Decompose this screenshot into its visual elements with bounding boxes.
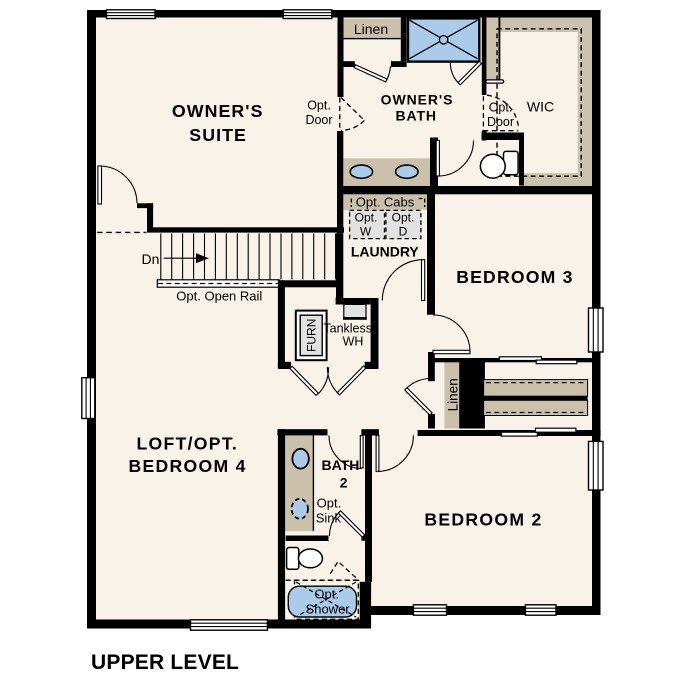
svg-text:Opt.: Opt. <box>314 587 339 602</box>
svg-text:Linen: Linen <box>445 378 460 411</box>
svg-text:2: 2 <box>340 475 348 491</box>
svg-text:FURN: FURN <box>305 319 319 352</box>
svg-text:Linen: Linen <box>354 21 388 37</box>
svg-text:D: D <box>399 225 408 239</box>
svg-text:LOFT/OPT.: LOFT/OPT. <box>136 433 238 453</box>
svg-text:BEDROOM 4: BEDROOM 4 <box>128 456 246 476</box>
svg-text:Opt.: Opt. <box>489 101 513 115</box>
svg-text:Opt.: Opt. <box>317 496 342 511</box>
svg-text:Shower: Shower <box>306 601 351 616</box>
svg-text:OWNER'S: OWNER'S <box>172 101 264 121</box>
svg-text:BATH: BATH <box>321 457 359 473</box>
svg-text:Opt.: Opt. <box>392 211 415 225</box>
svg-text:WH: WH <box>343 335 364 349</box>
svg-text:BEDROOM 3: BEDROOM 3 <box>456 267 573 287</box>
svg-text:BATH: BATH <box>395 107 436 123</box>
svg-text:WIC: WIC <box>527 99 554 115</box>
svg-text:OWNER'S: OWNER'S <box>381 91 454 107</box>
svg-text:Tankless: Tankless <box>323 322 372 336</box>
svg-text:UPPER LEVEL: UPPER LEVEL <box>91 651 239 674</box>
svg-text:Dn: Dn <box>142 251 160 267</box>
svg-text:BEDROOM 2: BEDROOM 2 <box>424 510 542 530</box>
svg-text:Opt. Cabs: Opt. Cabs <box>356 195 415 210</box>
svg-text:Door: Door <box>305 113 332 127</box>
svg-text:Opt.: Opt. <box>307 99 331 113</box>
svg-text:SUITE: SUITE <box>189 125 247 145</box>
svg-text:Opt.: Opt. <box>355 211 378 225</box>
svg-text:Opt. Open Rail: Opt. Open Rail <box>176 289 262 304</box>
svg-text:Sink: Sink <box>316 510 342 525</box>
svg-text:W: W <box>360 225 372 239</box>
svg-text:LAUNDRY: LAUNDRY <box>351 244 420 260</box>
svg-text:Door: Door <box>487 115 514 129</box>
